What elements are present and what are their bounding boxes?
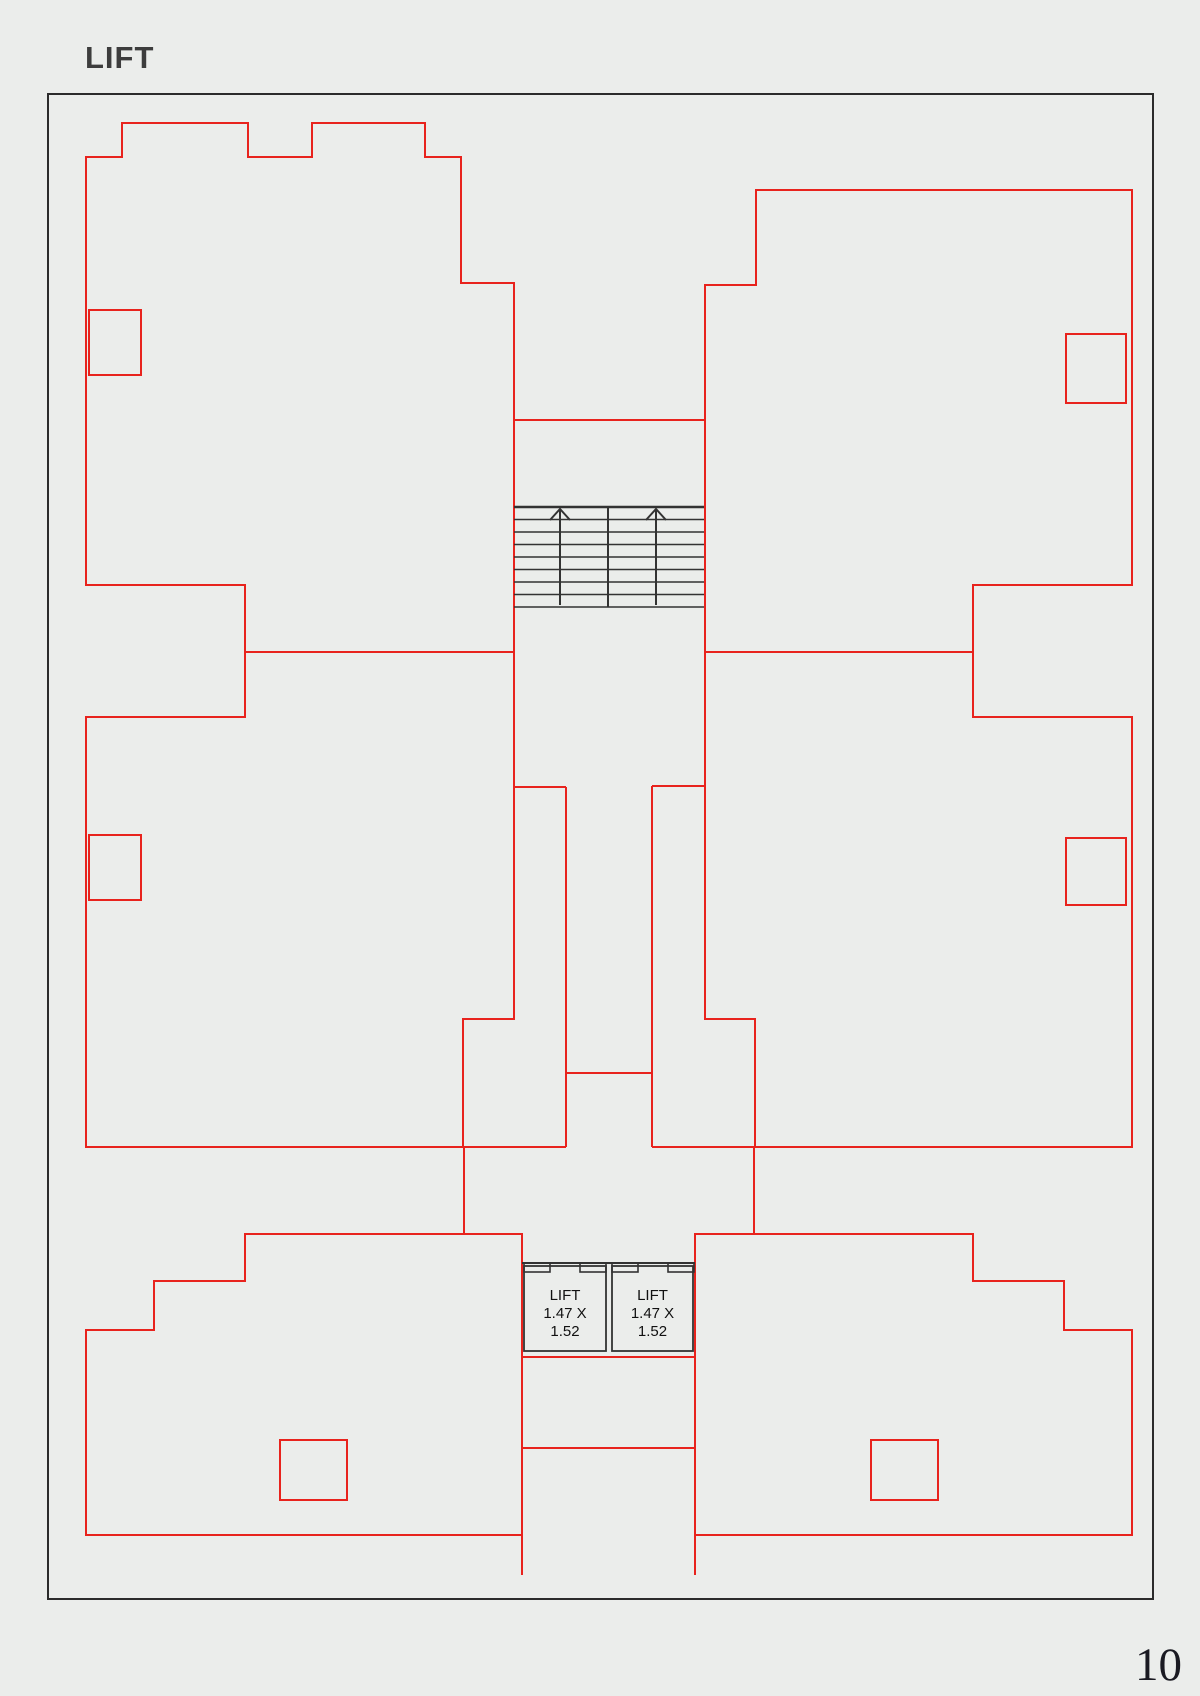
duct-top-right bbox=[1066, 334, 1126, 403]
lift-label: LIFT bbox=[637, 1287, 668, 1304]
duct-bottom-left bbox=[280, 1440, 347, 1500]
plan-sheet: LIFT LIFT1.47 X1.52LIFT1.47 X1.52 10 bbox=[0, 0, 1200, 1696]
duct-middle-left bbox=[89, 835, 141, 900]
duct-top-left bbox=[89, 310, 141, 375]
duct-middle-right bbox=[1066, 838, 1126, 905]
lift-label: 1.47 X bbox=[631, 1305, 674, 1322]
lift-label: 1.52 bbox=[550, 1323, 579, 1340]
lift-door-jamb bbox=[612, 1263, 638, 1272]
lift-door-jamb bbox=[668, 1263, 694, 1272]
apartment-top-right bbox=[705, 190, 1132, 652]
lift-label: 1.52 bbox=[638, 1323, 667, 1340]
floor-plan: LIFT1.47 X1.52LIFT1.47 X1.52 bbox=[0, 0, 1200, 1696]
lift-label: LIFT bbox=[550, 1287, 581, 1304]
apartment-middle-right bbox=[705, 652, 1132, 1147]
page-number: 10 bbox=[1002, 1638, 1182, 1692]
apartment-middle-left bbox=[86, 652, 514, 1147]
lift-label: 1.47 X bbox=[543, 1305, 586, 1322]
apartment-bottom-left bbox=[86, 1234, 522, 1535]
apartment-bottom-right bbox=[695, 1234, 1132, 1535]
lift-door-jamb bbox=[524, 1263, 550, 1272]
duct-bottom-right bbox=[871, 1440, 938, 1500]
apartment-top-left bbox=[86, 123, 514, 652]
lift-door-jamb bbox=[580, 1263, 606, 1272]
drawing-frame bbox=[48, 94, 1153, 1599]
